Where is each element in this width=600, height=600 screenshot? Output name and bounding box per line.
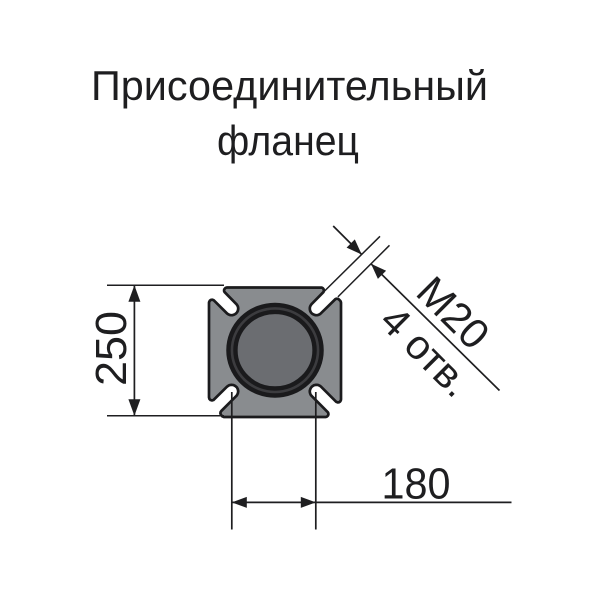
svg-text:180: 180 (382, 461, 451, 509)
svg-text:фланец: фланец (217, 117, 359, 164)
svg-text:Присоединительный: Присоединительный (91, 62, 488, 109)
svg-text:250: 250 (88, 311, 136, 386)
